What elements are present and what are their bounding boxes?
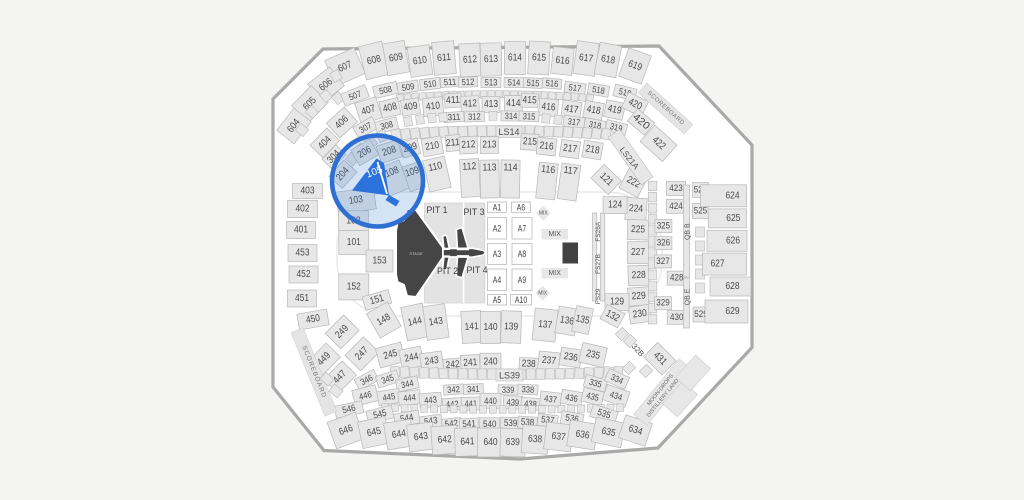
svg-text:A4: A4 bbox=[493, 275, 501, 285]
svg-text:236: 236 bbox=[563, 351, 579, 364]
svg-text:227: 227 bbox=[631, 247, 645, 258]
svg-text:117: 117 bbox=[563, 165, 579, 178]
svg-text:640: 640 bbox=[483, 437, 497, 448]
svg-text:437: 437 bbox=[544, 393, 558, 404]
svg-text:A7: A7 bbox=[518, 223, 526, 233]
svg-text:417: 417 bbox=[564, 103, 580, 116]
svg-text:143: 143 bbox=[428, 316, 444, 329]
svg-text:627: 627 bbox=[710, 259, 724, 270]
svg-text:113: 113 bbox=[482, 162, 497, 173]
svg-text:614: 614 bbox=[508, 52, 523, 63]
svg-text:101: 101 bbox=[347, 237, 361, 248]
svg-text:152: 152 bbox=[347, 281, 361, 292]
svg-text:124: 124 bbox=[608, 200, 622, 211]
svg-text:610: 610 bbox=[412, 55, 428, 68]
svg-text:A1: A1 bbox=[493, 202, 501, 212]
svg-text:517: 517 bbox=[568, 82, 582, 94]
svg-text:514: 514 bbox=[508, 77, 521, 87]
svg-text:224: 224 bbox=[629, 203, 644, 215]
svg-text:212: 212 bbox=[461, 139, 476, 151]
svg-text:A6: A6 bbox=[517, 202, 525, 212]
svg-text:625: 625 bbox=[726, 213, 740, 224]
svg-text:510: 510 bbox=[423, 78, 437, 89]
svg-text:PIT 2: PIT 2 bbox=[437, 266, 458, 277]
svg-text:312: 312 bbox=[468, 111, 481, 121]
svg-text:612: 612 bbox=[463, 54, 478, 66]
svg-text:403: 403 bbox=[300, 186, 314, 197]
svg-text:325: 325 bbox=[657, 221, 670, 232]
svg-text:211: 211 bbox=[445, 137, 460, 149]
svg-text:114: 114 bbox=[503, 162, 518, 173]
svg-text:153: 153 bbox=[372, 256, 386, 267]
svg-text:217: 217 bbox=[562, 143, 578, 156]
svg-text:LS14: LS14 bbox=[498, 127, 519, 137]
svg-text:MIX: MIX bbox=[538, 290, 548, 296]
svg-text:237: 237 bbox=[541, 355, 557, 367]
svg-text:643: 643 bbox=[413, 431, 429, 444]
svg-text:A10: A10 bbox=[515, 295, 528, 305]
svg-text:243: 243 bbox=[424, 355, 440, 368]
svg-text:638: 638 bbox=[528, 434, 543, 446]
svg-text:611: 611 bbox=[436, 52, 451, 64]
svg-text:512: 512 bbox=[461, 77, 474, 87]
svg-text:112: 112 bbox=[462, 161, 477, 173]
svg-text:410: 410 bbox=[425, 100, 441, 112]
svg-text:412: 412 bbox=[463, 98, 478, 109]
svg-text:453: 453 bbox=[295, 248, 309, 259]
svg-text:PIT 3: PIT 3 bbox=[464, 207, 485, 218]
svg-text:311: 311 bbox=[447, 112, 460, 123]
svg-text:229: 229 bbox=[631, 290, 646, 302]
svg-text:215: 215 bbox=[523, 136, 538, 148]
svg-text:315: 315 bbox=[522, 111, 535, 122]
svg-text:513: 513 bbox=[485, 78, 498, 88]
svg-text:230: 230 bbox=[632, 308, 648, 321]
svg-text:238: 238 bbox=[521, 358, 536, 370]
svg-text:STAGE: STAGE bbox=[409, 251, 423, 256]
svg-text:616: 616 bbox=[555, 55, 571, 67]
svg-text:MIX: MIX bbox=[548, 231, 561, 238]
svg-text:MIX: MIX bbox=[539, 210, 549, 216]
svg-text:445: 445 bbox=[382, 391, 396, 403]
svg-text:216: 216 bbox=[539, 140, 555, 152]
svg-text:615: 615 bbox=[532, 52, 547, 64]
svg-text:636: 636 bbox=[575, 428, 591, 441]
svg-text:430: 430 bbox=[670, 312, 683, 323]
svg-text:428: 428 bbox=[670, 273, 683, 284]
svg-text:443: 443 bbox=[424, 394, 438, 405]
svg-text:A8: A8 bbox=[518, 249, 526, 259]
svg-text:137: 137 bbox=[538, 319, 554, 331]
svg-text:341: 341 bbox=[467, 384, 480, 394]
svg-text:FS27B: FS27B bbox=[595, 254, 602, 274]
svg-text:411: 411 bbox=[446, 94, 461, 106]
svg-text:613: 613 bbox=[484, 54, 499, 65]
svg-text:642: 642 bbox=[437, 434, 452, 446]
svg-text:644: 644 bbox=[391, 428, 407, 441]
svg-text:515: 515 bbox=[526, 78, 539, 89]
svg-text:402: 402 bbox=[295, 204, 309, 215]
svg-text:LS39: LS39 bbox=[499, 370, 520, 380]
svg-text:A5: A5 bbox=[493, 295, 501, 305]
svg-text:626: 626 bbox=[726, 235, 740, 246]
svg-text:423: 423 bbox=[669, 183, 682, 194]
svg-text:414: 414 bbox=[506, 98, 521, 109]
svg-text:415: 415 bbox=[522, 95, 537, 107]
svg-text:617: 617 bbox=[578, 52, 594, 65]
svg-text:440: 440 bbox=[484, 396, 497, 406]
svg-text:401: 401 bbox=[294, 225, 308, 236]
svg-text:339: 339 bbox=[502, 385, 515, 395]
svg-text:116: 116 bbox=[541, 164, 557, 176]
svg-text:241: 241 bbox=[463, 357, 478, 369]
svg-text:139: 139 bbox=[504, 321, 519, 332]
svg-text:509: 509 bbox=[401, 81, 415, 93]
svg-text:314: 314 bbox=[505, 111, 518, 121]
svg-text:641: 641 bbox=[460, 436, 475, 447]
svg-text:327: 327 bbox=[656, 256, 669, 267]
svg-text:409: 409 bbox=[403, 100, 419, 113]
svg-text:424: 424 bbox=[669, 201, 682, 212]
svg-text:451: 451 bbox=[295, 293, 309, 304]
svg-text:129: 129 bbox=[610, 297, 624, 308]
svg-text:PIT 1: PIT 1 bbox=[427, 205, 448, 216]
svg-text:639: 639 bbox=[506, 437, 521, 448]
svg-text:338: 338 bbox=[521, 384, 534, 395]
svg-text:PIT 4: PIT 4 bbox=[467, 265, 488, 276]
svg-text:141: 141 bbox=[464, 321, 479, 333]
svg-text:539: 539 bbox=[504, 418, 518, 429]
svg-text:444: 444 bbox=[403, 392, 417, 403]
svg-text:637: 637 bbox=[551, 431, 567, 444]
svg-text:511: 511 bbox=[443, 77, 456, 88]
svg-text:342: 342 bbox=[447, 384, 460, 395]
svg-text:QB B: QB B bbox=[685, 223, 692, 240]
svg-text:QB E: QB E bbox=[685, 288, 692, 305]
svg-text:A9: A9 bbox=[518, 275, 526, 285]
svg-text:624: 624 bbox=[725, 190, 739, 201]
svg-text:240: 240 bbox=[483, 357, 497, 368]
svg-text:452: 452 bbox=[296, 269, 310, 280]
svg-text:413: 413 bbox=[484, 99, 498, 110]
svg-text:317: 317 bbox=[567, 116, 581, 128]
svg-text:228: 228 bbox=[631, 270, 646, 281]
svg-text:FS26A: FS26A bbox=[595, 221, 602, 242]
svg-text:213: 213 bbox=[482, 139, 497, 150]
svg-text:A2: A2 bbox=[493, 223, 501, 233]
svg-text:326: 326 bbox=[657, 238, 670, 249]
svg-text:516: 516 bbox=[545, 78, 559, 89]
svg-text:140: 140 bbox=[483, 322, 497, 333]
svg-text:628: 628 bbox=[725, 281, 739, 292]
svg-text:329: 329 bbox=[656, 298, 669, 309]
svg-text:629: 629 bbox=[725, 306, 739, 317]
svg-text:A3: A3 bbox=[493, 249, 501, 259]
svg-text:416: 416 bbox=[541, 101, 556, 113]
svg-text:FS29: FS29 bbox=[595, 288, 602, 304]
svg-text:225: 225 bbox=[631, 224, 646, 235]
svg-text:MIX: MIX bbox=[548, 270, 561, 277]
